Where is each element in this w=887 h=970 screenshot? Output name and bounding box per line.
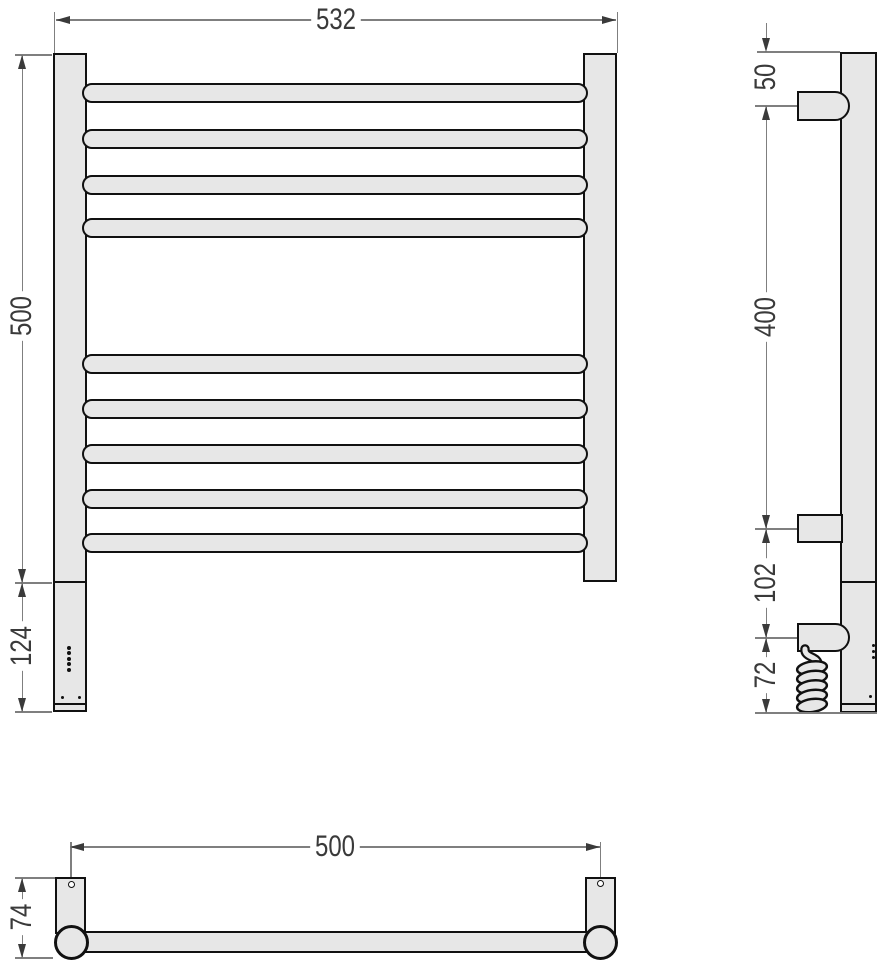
screw-dot bbox=[78, 696, 82, 700]
dim-label-depth: 74 bbox=[7, 899, 37, 935]
dim-label-mount-centers: 500 bbox=[310, 832, 360, 862]
side-post bbox=[840, 52, 877, 583]
dim-label-width: 532 bbox=[311, 5, 361, 35]
arrowhead bbox=[18, 569, 26, 583]
dim-label-heater-section: 124 bbox=[7, 621, 37, 671]
arrowhead bbox=[586, 843, 600, 851]
arrowhead bbox=[18, 878, 26, 892]
right-post bbox=[583, 53, 617, 582]
wall-bracket-middle bbox=[797, 514, 843, 543]
arrowhead bbox=[762, 638, 770, 652]
left-post-heater-section bbox=[53, 583, 87, 703]
ext-line bbox=[617, 12, 619, 53]
arrowhead bbox=[70, 843, 84, 851]
control-led bbox=[67, 668, 71, 672]
bottom-rail-bar bbox=[68, 931, 604, 953]
arrowhead bbox=[18, 944, 26, 958]
rail-bar bbox=[82, 83, 588, 103]
side-led-tick bbox=[872, 656, 875, 659]
post-section-left bbox=[54, 925, 89, 960]
ext-line bbox=[54, 12, 56, 53]
arrowhead bbox=[18, 583, 26, 597]
power-cable bbox=[790, 646, 836, 718]
arrowhead bbox=[18, 55, 26, 69]
mount-hole-right bbox=[597, 880, 604, 887]
rail-bar bbox=[82, 489, 588, 509]
control-led bbox=[67, 646, 71, 650]
wall-bracket-top bbox=[797, 91, 850, 121]
rail-bar bbox=[82, 129, 588, 149]
post-section-right bbox=[583, 925, 618, 960]
arrowhead bbox=[56, 16, 70, 24]
rail-bar bbox=[82, 354, 588, 374]
arrowhead bbox=[762, 699, 770, 713]
control-led bbox=[67, 657, 71, 661]
rail-bar bbox=[82, 175, 588, 195]
side-led-tick bbox=[872, 650, 875, 653]
dim-label-height: 500 bbox=[7, 291, 37, 341]
screw-dot bbox=[61, 696, 65, 700]
arrowhead bbox=[602, 16, 616, 24]
ground-line bbox=[755, 712, 877, 714]
arrowhead bbox=[762, 106, 770, 120]
rail-bar bbox=[82, 444, 588, 464]
mount-hole-left bbox=[68, 881, 75, 888]
rail-bar bbox=[82, 533, 588, 553]
arrowhead bbox=[762, 515, 770, 529]
arrowhead bbox=[18, 698, 26, 712]
dim-label-bracket-span: 400 bbox=[751, 292, 781, 342]
arrowhead bbox=[762, 529, 770, 543]
towel-rail-technical-drawing: 532 500 124 50 400 102 72 500 74 bbox=[0, 0, 887, 970]
rail-bar bbox=[82, 399, 588, 419]
rail-bar bbox=[82, 218, 588, 238]
left-post bbox=[53, 53, 87, 583]
dim-label-bracket-to-terminal: 102 bbox=[751, 558, 781, 608]
arrowhead bbox=[762, 624, 770, 638]
dim-label-top-offset: 50 bbox=[751, 59, 781, 95]
arrowhead bbox=[762, 38, 770, 52]
side-screw-dot bbox=[869, 695, 872, 698]
side-led-tick bbox=[872, 644, 875, 647]
left-post-end-cap bbox=[53, 703, 87, 712]
dim-label-cable-drop: 72 bbox=[751, 657, 781, 693]
